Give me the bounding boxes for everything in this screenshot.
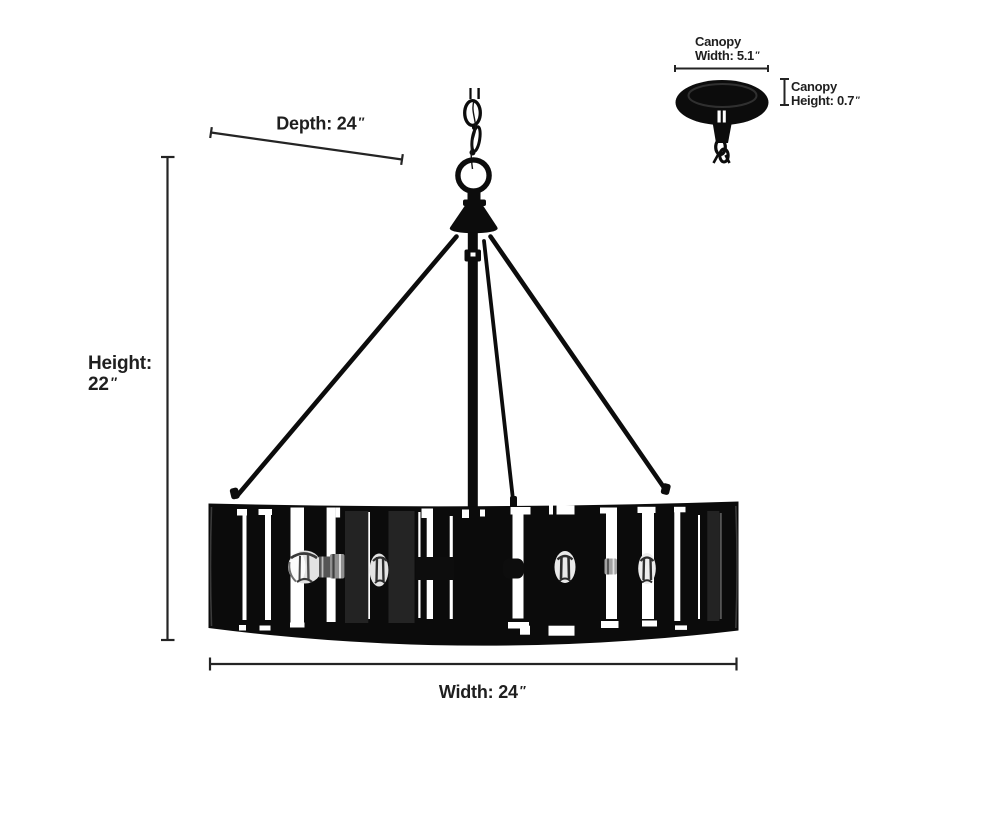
svg-text:Canopy: Canopy bbox=[695, 34, 742, 49]
svg-text:Height: 0.7 ″: Height: 0.7 ″ bbox=[791, 93, 860, 108]
svg-text:Canopy: Canopy bbox=[791, 79, 838, 94]
svg-text:Width: 5.1 ″: Width: 5.1 ″ bbox=[695, 48, 760, 63]
svg-text:Width: 24 ″: Width: 24 ″ bbox=[439, 682, 526, 702]
svg-text:Depth: 24 ″: Depth: 24 ″ bbox=[276, 114, 365, 134]
svg-text:Height:: Height: bbox=[88, 353, 152, 374]
